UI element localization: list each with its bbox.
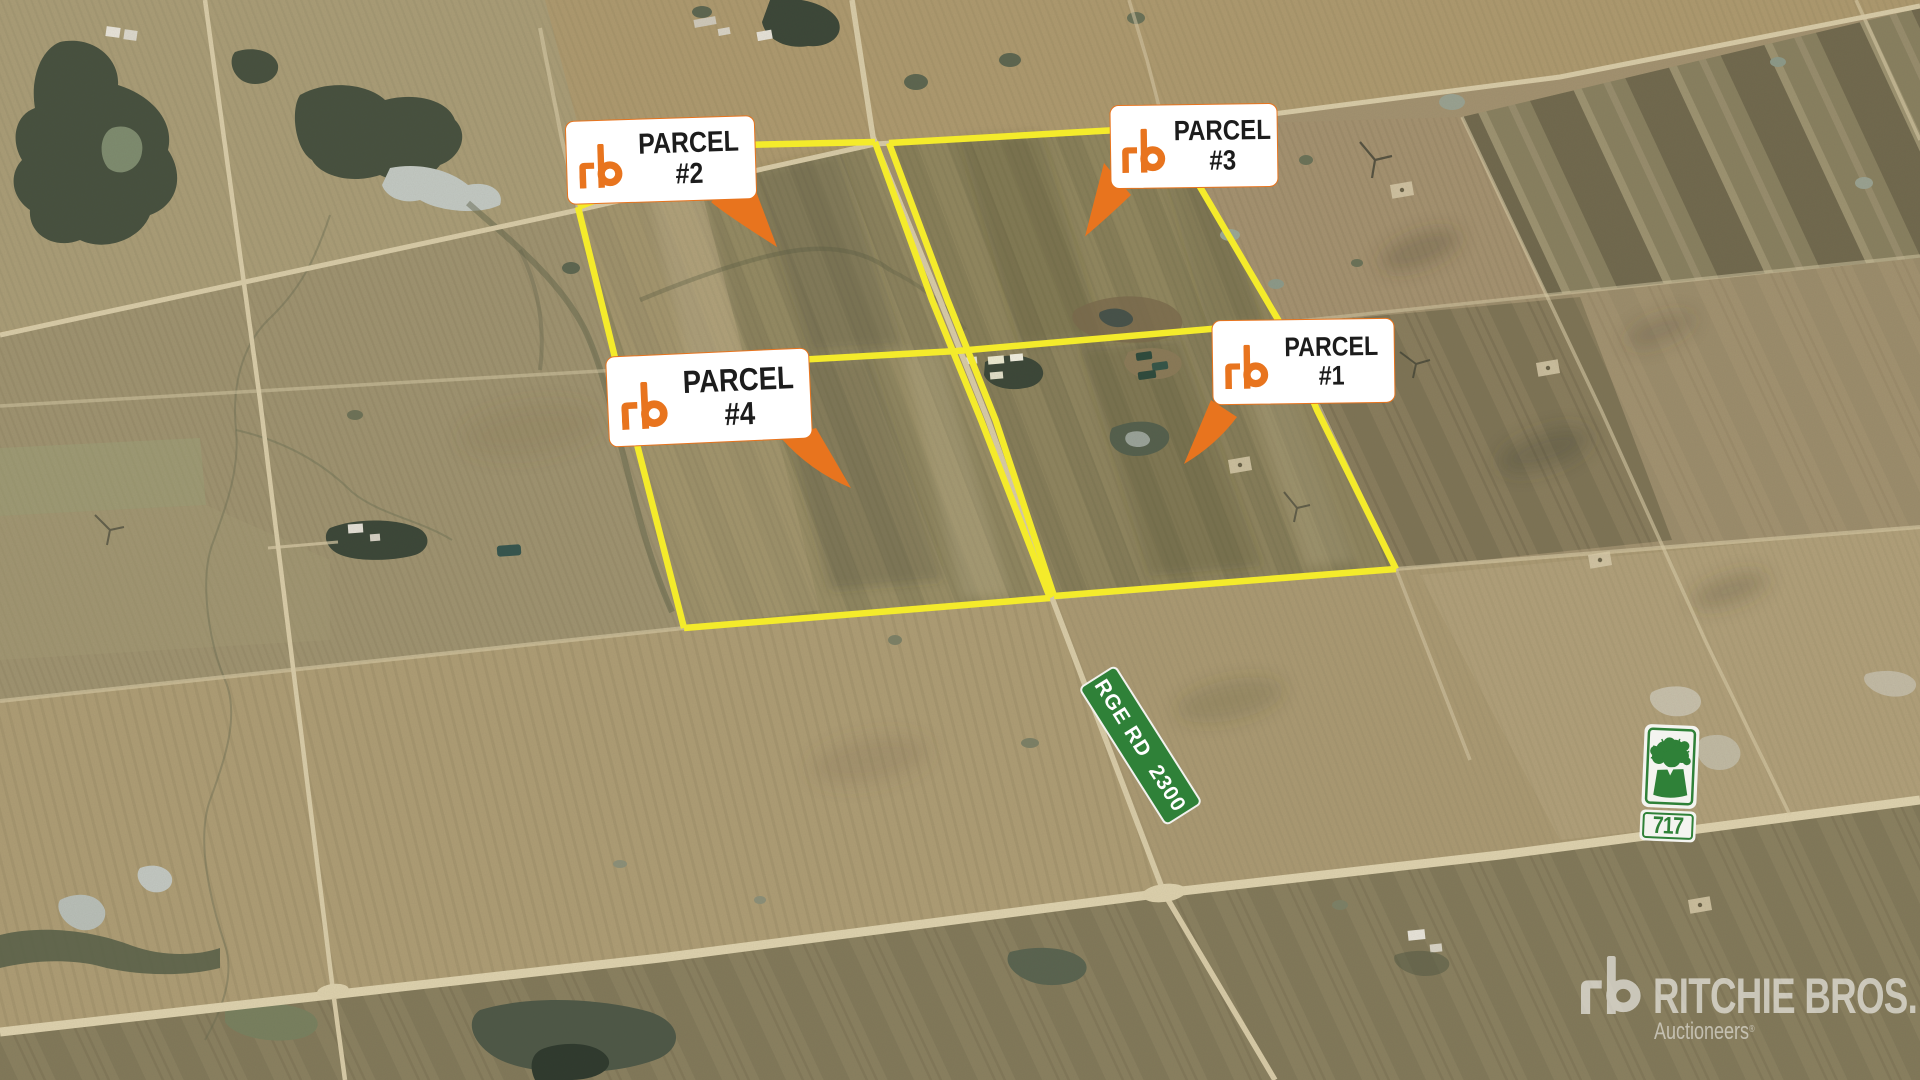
svg-text:717: 717 [1652, 811, 1684, 840]
